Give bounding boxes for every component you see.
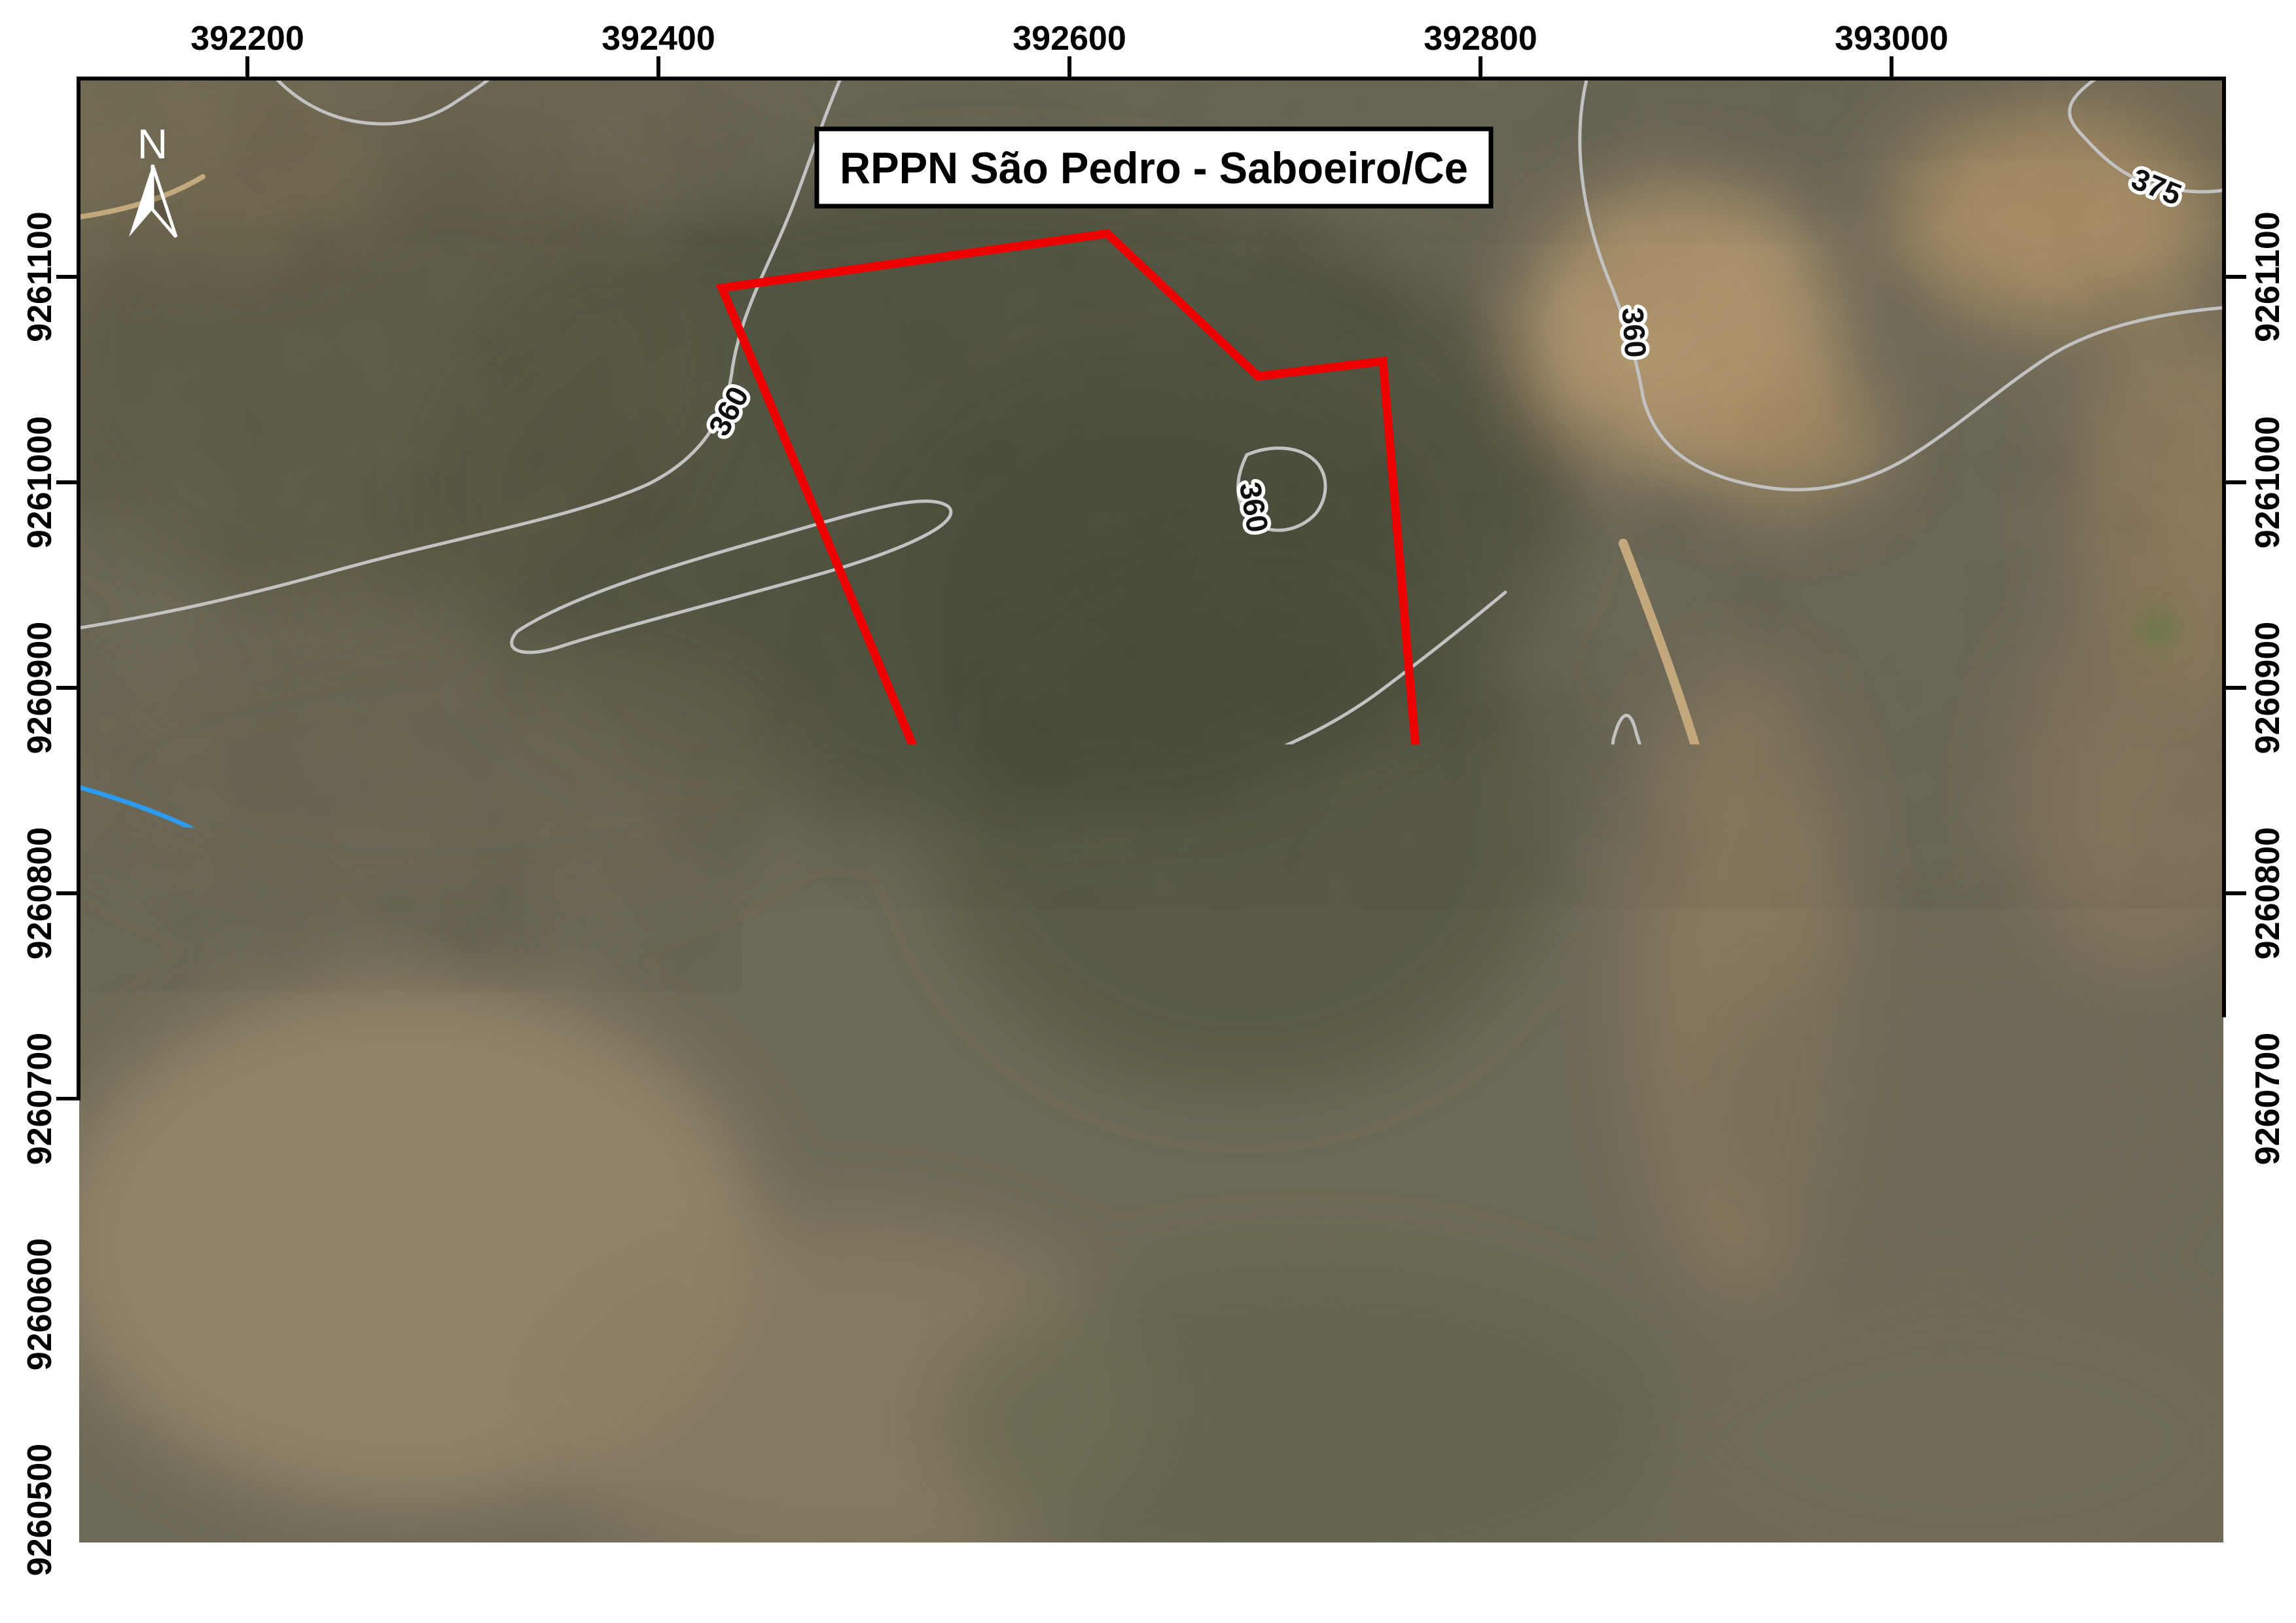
grid-label-bottom-392800: 392800	[1424, 1568, 1537, 1606]
map-export-canvas: 360 360 360 345 330 345 375 Esri, HERE, …	[0, 0, 2296, 1623]
attribution-line-3: Community	[1157, 1520, 1270, 1544]
contour-label-360-right: 360	[1615, 306, 1653, 359]
grid-label-bottom-392200: 392200	[190, 1568, 304, 1606]
map-layout-page: 360 360 360 345 330 345 375 Esri, HERE, …	[0, 0, 2296, 1623]
grid-label-right-9261000: 9261000	[2249, 416, 2287, 548]
grid-label-top-393000: 393000	[1835, 20, 1948, 58]
scale-label-35: 35	[187, 1404, 219, 1436]
grid-label-bottom-392600: 392600	[1013, 1568, 1126, 1606]
grid-label-left-9261000: 9261000	[21, 416, 59, 548]
grid-label-left-9260600: 9260600	[21, 1238, 59, 1370]
scale-bar-segments	[129, 1438, 573, 1466]
contour-label-330: 330	[1146, 915, 1200, 954]
grid-label-right-9260500: 9260500	[2249, 1444, 2287, 1576]
grid-label-top-392200: 392200	[190, 20, 304, 58]
scale-label-0: 0	[121, 1404, 137, 1436]
grid-label-right-9260600: 9260600	[2249, 1238, 2287, 1370]
grid-label-right-9260800: 9260800	[2249, 827, 2287, 959]
scale-label-70: 70	[261, 1404, 293, 1436]
grid-label-right-9261100: 9261100	[2249, 211, 2287, 342]
grid-labels-left: 9261100 9261000 9260900 9260800 9260700 …	[21, 211, 59, 1576]
grid-label-top-392800: 392800	[1424, 20, 1537, 58]
north-arrow-label: N	[137, 120, 168, 168]
grid-labels-right: 9261100 9261000 9260900 9260800 9260700 …	[2249, 211, 2287, 1576]
grid-label-top-392600: 392600	[1013, 20, 1126, 58]
satellite-basemap: 360 360 360 345 330 345 375 Esri, HERE, …	[0, 39, 2296, 1597]
grid-label-right-9260700: 9260700	[2249, 1033, 2287, 1165]
grid-label-left-9260900: 9260900	[21, 622, 59, 754]
grid-labels-top: 392200 392400 392600 392800 393000	[190, 20, 1948, 58]
scale-unit-label: m	[584, 1436, 612, 1473]
map-title: RPPN São Pedro - Saboeiro/Ce	[840, 143, 1468, 193]
grid-label-left-9261100: 9261100	[21, 211, 59, 342]
grid-label-left-9260800: 9260800	[21, 827, 59, 959]
grid-label-bottom-392400: 392400	[601, 1568, 715, 1606]
scale-label-210: 210	[548, 1404, 596, 1436]
grid-label-left-9260500: 9260500	[21, 1444, 59, 1576]
attribution-line-1: Esri, HERE, Garmin, © OpenStreetMap cont…	[1157, 1467, 2237, 1492]
scale-label-140: 140	[401, 1404, 448, 1436]
grid-labels-bottom: 392200 392400 392600 392800 393000	[190, 1568, 1948, 1606]
map-title-box: RPPN São Pedro - Saboeiro/Ce	[817, 129, 1491, 206]
terrain-speckle-texture	[77, 77, 2225, 1544]
attribution-line-2: GeoEye, Earthstar Geographics, CNES/Airb…	[1157, 1493, 2153, 1518]
grid-label-top-392400: 392400	[601, 20, 715, 58]
scale-bar: 0 35 70 140 210 m	[116, 1395, 615, 1473]
grid-label-bottom-393000: 393000	[1835, 1568, 1948, 1606]
grid-label-right-9260900: 9260900	[2249, 622, 2287, 754]
grid-label-left-9260700: 9260700	[21, 1033, 59, 1165]
